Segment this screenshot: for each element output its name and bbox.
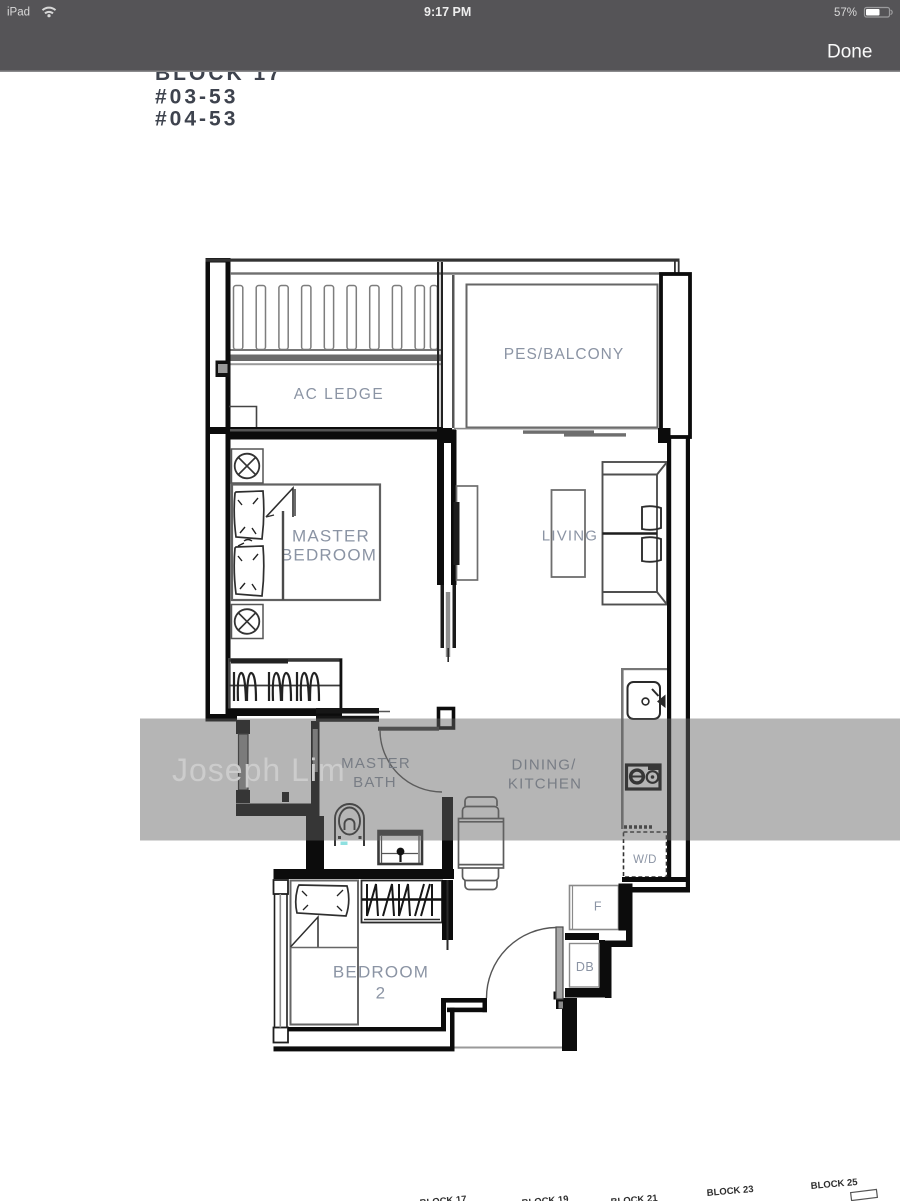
svg-text:Done: Done: [827, 42, 872, 63]
svg-text:PES/BALCONY: PES/BALCONY: [504, 346, 624, 363]
svg-text:F: F: [594, 900, 602, 914]
svg-text:57%: 57%: [834, 7, 857, 19]
svg-text:Joseph Lim: Joseph Lim: [172, 752, 346, 788]
svg-text:2: 2: [376, 984, 387, 1003]
svg-text:9:17 PM: 9:17 PM: [424, 5, 471, 19]
svg-text:#03-53: #03-53: [155, 86, 238, 109]
svg-text:LIVING: LIVING: [542, 528, 598, 545]
svg-text:AC LEDGE: AC LEDGE: [294, 386, 384, 403]
svg-text:MASTER: MASTER: [292, 527, 370, 546]
svg-text:W/D: W/D: [633, 854, 657, 866]
svg-text:#04-53: #04-53: [155, 108, 238, 131]
svg-text:DB: DB: [576, 960, 594, 974]
svg-text:BEDROOM: BEDROOM: [333, 963, 429, 982]
svg-text:BEDROOM: BEDROOM: [281, 546, 377, 565]
svg-text:iPad: iPad: [7, 7, 30, 19]
